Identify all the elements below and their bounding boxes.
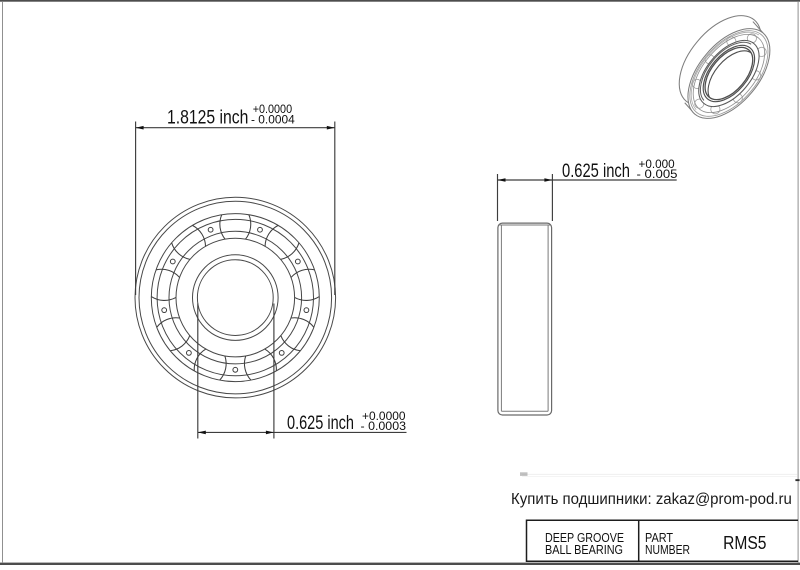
svg-text:NUMBER: NUMBER (645, 543, 690, 557)
svg-text:0.625 inch: 0.625 inch (562, 161, 630, 182)
svg-text:RMS5: RMS5 (723, 533, 766, 553)
svg-text:Купить подшипники: zakaz@prom-: Купить подшипники: zakaz@prom-pod.ru (511, 491, 792, 508)
svg-text:- 0.005: - 0.005 (637, 167, 678, 181)
svg-text:- 0.0004: - 0.0004 (251, 113, 295, 127)
svg-text:0.625 inch: 0.625 inch (287, 413, 354, 434)
svg-text:1.8125 inch: 1.8125 inch (167, 107, 248, 129)
svg-text:BALL BEARING: BALL BEARING (545, 543, 623, 557)
svg-text:- 0.0003: - 0.0003 (361, 419, 407, 433)
